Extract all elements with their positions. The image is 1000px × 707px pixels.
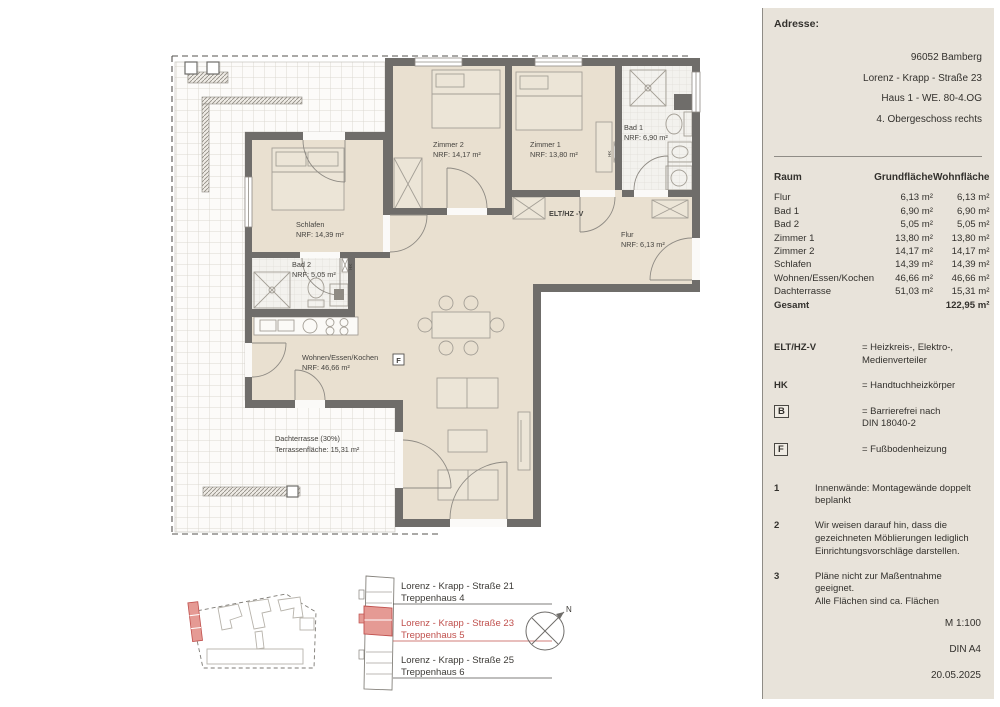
compass-north-label: N [566, 605, 572, 614]
divider [774, 156, 982, 157]
bed-schlafen [272, 148, 344, 210]
notes: 1 Innenwände: Montagewände doppelt bepla… [774, 483, 982, 609]
svg-text:F: F [396, 356, 401, 365]
room-area-zimmer1: NRF: 13,80 m² [530, 150, 578, 159]
legend-entry-hk: HK = Handtuchheizkörper [774, 380, 982, 393]
room-area-bad2: NRF: 5,05 m² [292, 270, 336, 279]
terrace-screen [203, 487, 300, 496]
elt-hz-v-label: ELT/HZ -V [549, 209, 583, 218]
bed-zimmer1 [516, 72, 582, 130]
room-area-zimmer2: NRF: 14,17 m² [433, 150, 481, 159]
paper-format: DIN A4 [931, 637, 981, 663]
room-area-schlafen: NRF: 14,39 m² [296, 230, 344, 239]
sofa [438, 470, 498, 500]
locator-labels: Lorenz - Krapp - Straße 21 Treppenhaus 4… [393, 581, 552, 678]
legend-entry-b: B = Barrierefrei nach DIN 18040-2 [774, 406, 982, 431]
room-label-schlafen: Schlafen [296, 220, 324, 229]
window [245, 177, 252, 227]
room-label-bad2: Bad 2 [292, 260, 311, 269]
legend: ELT/HZ-V = Heizkreis-, Elektro-, Medienv… [774, 342, 982, 457]
table-row: Schlafen14,39 m²14,39 m² [774, 258, 989, 271]
room-label-zimmer1: Zimmer 1 [530, 140, 561, 149]
floor-plan-drawing: Zimmer 2 NRF: 14,17 m² Zimmer 1 NRF: 13,… [0, 0, 762, 707]
terrace-screen [202, 104, 209, 192]
terrace-column [287, 486, 298, 497]
room-label-bad1: Bad 1 [624, 123, 643, 132]
address-line: 96052 Bamberg [774, 48, 982, 69]
shaft-bad1 [674, 94, 692, 110]
table-row: Zimmer 113,80 m²13,80 m² [774, 232, 989, 245]
underfloor-heating-icon: F [774, 443, 788, 456]
address-line: Lorenz - Krapp - Straße 23 [774, 69, 982, 90]
building-strip-highlight [364, 606, 392, 636]
table-row: Flur6,13 m²6,13 m² [774, 191, 989, 204]
locator-entry: Lorenz - Krapp - Straße 25 Treppenhaus 6 [393, 655, 552, 678]
room-label-wohnen: Wohnen/Essen/Kochen [302, 353, 378, 362]
note-1: 1 Innenwände: Montagewände doppelt bepla… [774, 483, 982, 509]
sheet-meta: M 1:100 DIN A4 20.05.2025 [931, 611, 981, 689]
terrace-column [185, 62, 197, 74]
coffee-table [448, 430, 487, 452]
wardrobe-zimmer2 [394, 158, 422, 210]
site-plan-highlight [188, 602, 203, 642]
kitchen-counter [254, 317, 358, 335]
terrace-column [207, 62, 219, 74]
window [692, 72, 700, 112]
area-table-header: Raum Grundfläche Wohnfläche [774, 171, 989, 191]
table-total-row: Gesamt122,95 m² [774, 299, 989, 312]
date: 20.05.2025 [931, 663, 981, 689]
info-panel: Adresse: 96052 Bamberg Lorenz - Krapp - … [762, 8, 994, 699]
window [535, 58, 582, 66]
svg-text:Treppenhaus 6: Treppenhaus 6 [401, 667, 465, 678]
table-row: Wohnen/Essen/Kochen46,66 m²46,66 m² [774, 272, 989, 285]
site-plan [188, 594, 316, 668]
locator-entry: Lorenz - Krapp - Straße 21 Treppenhaus 4 [393, 581, 552, 604]
elt-cabinet [513, 197, 545, 219]
svg-text:Lorenz - Krapp - Straße 23: Lorenz - Krapp - Straße 23 [401, 618, 514, 629]
room-area-bad1: NRF: 6,90 m² [624, 133, 668, 142]
scale: M 1:100 [931, 611, 981, 637]
area-table: Raum Grundfläche Wohnfläche Flur6,13 m²6… [774, 171, 989, 312]
address-line: Haus 1 - WE. 80-4.OG [774, 89, 982, 110]
address-line: 4. Obergeschoss rechts [774, 110, 982, 131]
tv-board [518, 412, 530, 470]
svg-text:Lorenz - Krapp - Straße 21: Lorenz - Krapp - Straße 21 [401, 581, 514, 592]
svg-text:Treppenhaus 4: Treppenhaus 4 [401, 593, 465, 604]
svg-text:Treppenhaus 5: Treppenhaus 5 [401, 630, 465, 641]
room-area-wohnen: NRF: 46,66 m² [302, 363, 350, 372]
terrace-screen [202, 97, 302, 104]
bed-zimmer2 [432, 70, 500, 128]
address-block: 96052 Bamberg Lorenz - Krapp - Straße 23… [774, 48, 982, 130]
legend-entry-elt: ELT/HZ-V = Heizkreis-, Elektro-, Medienv… [774, 342, 982, 367]
note-3: 3 Pläne nicht zur Maßentnahme geeignet. … [774, 571, 982, 609]
room-label-dachterrasse: Dachterrasse (30%) [275, 434, 340, 443]
hk-icon: HK [348, 263, 353, 270]
hk-icon: HK [607, 150, 612, 157]
barrier-free-icon: B [774, 405, 789, 418]
note-2: 2 Wir weisen darauf hin, dass die gezeic… [774, 520, 982, 558]
room-label-zimmer2: Zimmer 2 [433, 140, 464, 149]
compass-icon: N [526, 605, 572, 650]
table-row: Bad 16,90 m²6,90 m² [774, 205, 989, 218]
table-row: Zimmer 214,17 m²14,17 m² [774, 245, 989, 258]
sofa [437, 378, 498, 408]
room-label-flur: Flur [621, 230, 634, 239]
table-row: Bad 25,05 m²5,05 m² [774, 218, 989, 231]
svg-text:Lorenz - Krapp - Straße 25: Lorenz - Krapp - Straße 25 [401, 655, 514, 666]
wardrobe-flur [652, 200, 688, 218]
address-heading: Adresse: [774, 18, 982, 30]
room-area-dachterrasse: Terrassenfläche: 15,31 m² [275, 445, 360, 454]
room-area-flur: NRF: 6,13 m² [621, 240, 665, 249]
table-row: Dachterrasse51,03 m²15,31 m² [774, 285, 989, 298]
window [415, 58, 462, 66]
desk-zimmer1 [596, 122, 612, 172]
legend-entry-f: F = Fußbodenheizung [774, 444, 982, 457]
building-strip [359, 576, 394, 690]
